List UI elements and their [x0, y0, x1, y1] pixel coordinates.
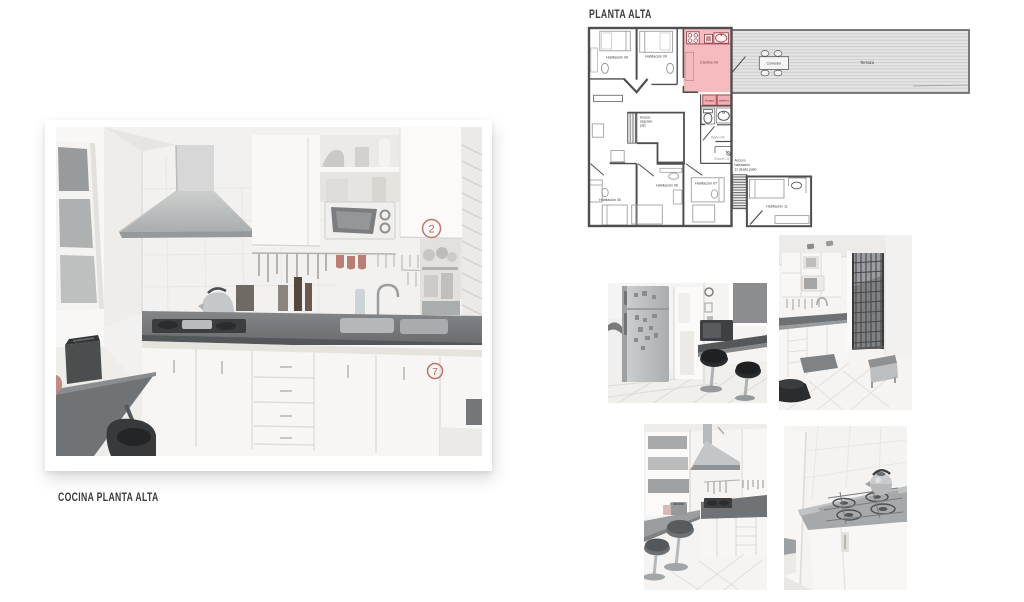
svg-text:Habitación 09: Habitación 09 [645, 55, 667, 59]
svg-text:Comedor: Comedor [767, 62, 783, 66]
svg-text:washer: washer [719, 99, 729, 103]
svg-text:2: 2 [428, 224, 434, 236]
svg-text:7: 7 [432, 367, 438, 378]
svg-text:Baño 04: Baño 04 [711, 136, 724, 140]
svg-text:Habitación 11: Habitación 11 [766, 205, 788, 209]
svg-text:Cocina 03: Cocina 03 [700, 60, 719, 65]
svg-text:11 desde patio: 11 desde patio [735, 168, 757, 172]
svg-text:fregad: fregad [705, 99, 714, 103]
svg-text:Habitación 06: Habitación 06 [656, 184, 678, 188]
svg-text:Acceso: Acceso [735, 159, 746, 163]
svg-text:Habitación 08: Habitación 08 [606, 55, 628, 59]
svg-text:Shower 04: Shower 04 [714, 157, 729, 161]
svg-text:Terraza: Terraza [860, 60, 875, 65]
svg-text:piso: piso [640, 124, 646, 128]
svg-text:Habitación 07: Habitación 07 [695, 182, 717, 186]
svg-text:habitación: habitación [735, 163, 751, 167]
